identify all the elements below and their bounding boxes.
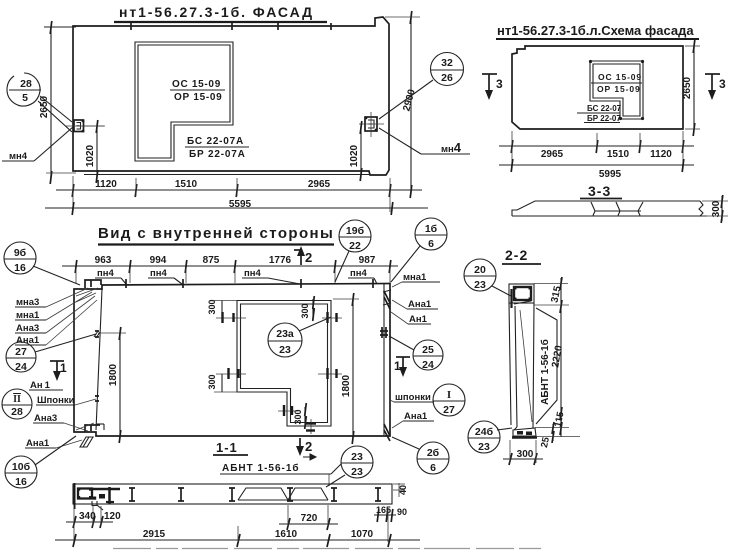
svg-text:1800: 1800 bbox=[108, 363, 119, 386]
svg-text:300: 300 bbox=[207, 374, 217, 389]
svg-text:23: 23 bbox=[279, 344, 291, 356]
svg-text:АБНТ 1-56-1б: АБНТ 1-56-1б bbox=[539, 339, 551, 405]
svg-text:6: 6 bbox=[430, 462, 436, 474]
svg-text:мн4: мн4 bbox=[9, 151, 28, 162]
svg-text:1510: 1510 bbox=[175, 179, 198, 190]
svg-text:10б: 10б bbox=[12, 461, 31, 473]
svg-text:1120: 1120 bbox=[95, 179, 117, 190]
svg-text:2-2: 2-2 bbox=[505, 247, 528, 263]
svg-text:16: 16 bbox=[15, 476, 27, 488]
svg-text:16: 16 bbox=[14, 262, 26, 274]
svg-text:1610: 1610 bbox=[275, 529, 298, 540]
svg-text:2965: 2965 bbox=[541, 149, 564, 160]
svg-text:5995: 5995 bbox=[599, 169, 622, 180]
svg-text:1: 1 bbox=[394, 359, 401, 373]
svg-text:23: 23 bbox=[478, 441, 490, 453]
svg-text:23: 23 bbox=[351, 451, 363, 463]
svg-text:мна3: мна3 bbox=[16, 297, 39, 308]
svg-text:1020: 1020 bbox=[349, 144, 360, 167]
svg-text:963: 963 bbox=[95, 255, 112, 266]
svg-text:1800: 1800 bbox=[341, 374, 352, 397]
svg-text:300: 300 bbox=[207, 299, 217, 314]
svg-text:2б: 2б bbox=[427, 447, 440, 459]
svg-text:2: 2 bbox=[305, 250, 312, 265]
svg-text:23: 23 bbox=[351, 466, 363, 478]
svg-text:23а: 23а bbox=[276, 328, 294, 340]
svg-text:3-3: 3-3 bbox=[588, 183, 611, 199]
svg-text:1-1: 1-1 bbox=[216, 440, 238, 455]
svg-text:1510: 1510 bbox=[607, 149, 630, 160]
svg-text:2915: 2915 bbox=[143, 529, 166, 540]
svg-text:5: 5 bbox=[22, 92, 28, 104]
svg-text:27: 27 bbox=[15, 346, 27, 358]
svg-text:994: 994 bbox=[150, 255, 167, 266]
svg-text:ОР 15-09: ОР 15-09 bbox=[174, 92, 222, 103]
svg-text:пн4: пн4 bbox=[350, 268, 367, 279]
svg-text:Шпонки: Шпонки bbox=[37, 395, 75, 406]
svg-text:II: II bbox=[13, 394, 21, 405]
svg-text:3: 3 bbox=[496, 77, 503, 91]
svg-text:300: 300 bbox=[517, 449, 534, 460]
svg-text:2965: 2965 bbox=[308, 179, 331, 190]
svg-text:ОР 15-09: ОР 15-09 bbox=[597, 84, 641, 94]
svg-text:24: 24 bbox=[15, 361, 27, 373]
svg-text:АБНТ 1-56-1б: АБНТ 1-56-1б bbox=[222, 462, 300, 474]
svg-text:1070: 1070 bbox=[351, 529, 374, 540]
svg-text:300: 300 bbox=[300, 303, 310, 318]
svg-text:Вид с внутренней стороны: Вид с внутренней стороны bbox=[98, 225, 334, 242]
svg-text:23: 23 bbox=[474, 279, 486, 291]
svg-text:ОС 15-09: ОС 15-09 bbox=[598, 72, 642, 82]
svg-text:25: 25 bbox=[422, 344, 434, 356]
svg-text:24: 24 bbox=[422, 359, 434, 371]
svg-text:6: 6 bbox=[428, 238, 434, 250]
svg-text:Ана1: Ана1 bbox=[404, 411, 428, 422]
svg-text:20: 20 bbox=[474, 264, 486, 276]
svg-text:300: 300 bbox=[293, 409, 303, 424]
svg-text:2650: 2650 bbox=[682, 76, 693, 99]
svg-text:БС 22-07А: БС 22-07А bbox=[187, 136, 244, 147]
svg-text:28: 28 bbox=[20, 78, 32, 90]
svg-text:Ана3: Ана3 bbox=[16, 323, 39, 334]
svg-text:32: 32 bbox=[441, 57, 453, 69]
svg-text:1020: 1020 bbox=[85, 144, 96, 167]
svg-text:2: 2 bbox=[305, 439, 312, 454]
svg-text:БС 22-07: БС 22-07 bbox=[587, 104, 622, 113]
svg-text:24б: 24б bbox=[475, 426, 494, 438]
svg-text:нт1-56.27.3-1б.л.Схема фасада: нт1-56.27.3-1б.л.Схема фасада bbox=[497, 23, 694, 38]
svg-text:27: 27 bbox=[443, 404, 455, 416]
svg-text:165: 165 bbox=[376, 505, 391, 515]
svg-text:Ан1: Ан1 bbox=[409, 314, 428, 325]
svg-text:875: 875 bbox=[203, 255, 220, 266]
svg-text:1: 1 bbox=[60, 361, 67, 375]
svg-text:5595: 5595 bbox=[229, 199, 252, 210]
svg-text:мна1: мна1 bbox=[16, 310, 40, 321]
svg-text:720: 720 bbox=[301, 513, 318, 524]
svg-text:120: 120 bbox=[104, 511, 121, 522]
svg-text:1120: 1120 bbox=[650, 149, 672, 160]
svg-text:987: 987 bbox=[359, 255, 376, 266]
svg-text:3: 3 bbox=[719, 77, 726, 91]
svg-text:26: 26 bbox=[441, 72, 453, 84]
svg-text:2650: 2650 bbox=[39, 95, 50, 118]
svg-text:пн4: пн4 bbox=[244, 268, 261, 279]
svg-text:Ана3: Ана3 bbox=[34, 413, 57, 424]
svg-text:БР 22-07А: БР 22-07А bbox=[189, 149, 246, 160]
svg-text:90: 90 bbox=[397, 507, 407, 517]
svg-text:340: 340 bbox=[79, 511, 96, 522]
svg-text:1776: 1776 bbox=[269, 255, 292, 266]
svg-text:300: 300 bbox=[711, 200, 722, 217]
svg-text:I: I bbox=[447, 389, 451, 401]
svg-text:1б: 1б bbox=[425, 223, 438, 235]
svg-text:пн4: пн4 bbox=[97, 268, 114, 279]
svg-text:мна1: мна1 bbox=[403, 272, 427, 283]
svg-text:БР 22-07: БР 22-07 bbox=[587, 114, 621, 123]
svg-text:9б: 9б bbox=[14, 247, 27, 259]
svg-text:Ана1: Ана1 bbox=[26, 438, 50, 449]
svg-text:22: 22 bbox=[349, 240, 361, 252]
svg-text:пн4: пн4 bbox=[150, 268, 167, 279]
svg-text:Ана1: Ана1 bbox=[408, 299, 432, 310]
svg-text:Ана1: Ана1 bbox=[16, 335, 40, 346]
svg-text:ОС 15-09: ОС 15-09 bbox=[172, 79, 221, 90]
svg-text:нт1-56.27.3-1б. ФАСАД: нт1-56.27.3-1б. ФАСАД bbox=[119, 4, 314, 20]
svg-text:шпонки: шпонки bbox=[395, 392, 431, 403]
svg-text:28: 28 bbox=[11, 406, 23, 418]
svg-text:Ан1: Ан1 bbox=[30, 380, 51, 391]
svg-text:19б: 19б bbox=[346, 225, 365, 237]
